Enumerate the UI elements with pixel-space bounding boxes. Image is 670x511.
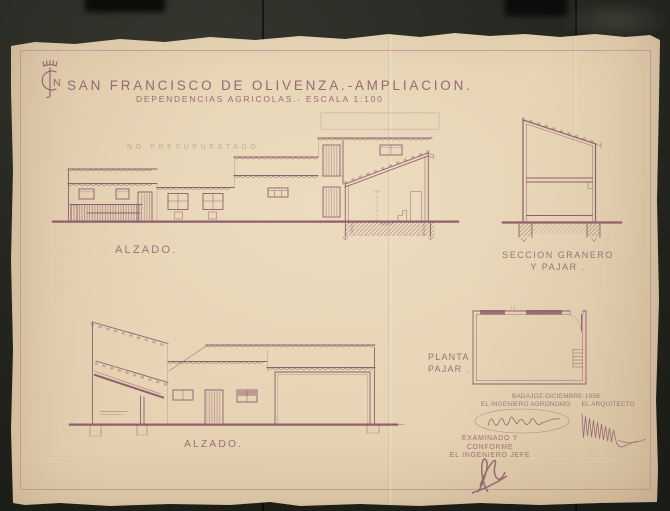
seccion-label-line1: SECCION GRANERO [502, 250, 614, 260]
backdrop-dark-patch [85, 0, 165, 12]
section-granero-drawing [495, 105, 630, 250]
signature-arquitecto [578, 404, 653, 446]
drawing-label-planta: PLANTA PAJAR . [428, 352, 470, 375]
planta-label-line2: PAJAR . [428, 364, 470, 374]
paper-sheet: N SAN FRANCISCO DE OLIVENZA.-AMPLIACION.… [0, 0, 670, 511]
sheet-title: SAN FRANCISCO DE OLIVENZA.-AMPLIACION. [67, 78, 473, 93]
place-date: BADAJOZ-DICIEMBRE-1958 [512, 393, 600, 400]
drawing-label-alzado-top: ALZADO. [115, 244, 177, 256]
scan-backdrop: N SAN FRANCISCO DE OLIVENZA.-AMPLIACION.… [0, 0, 670, 511]
drawing-label-seccion: SECCION GRANERO Y PAJAR . [495, 250, 621, 273]
seccion-label-line2: Y PAJAR . [530, 262, 585, 272]
inc-monogram-icon: N [34, 58, 66, 102]
embossed-stamp [320, 112, 440, 130]
logo-letter: N [53, 77, 61, 89]
elevation-bottom-drawing [60, 300, 450, 445]
planta-label-line1: PLANTA [428, 352, 470, 362]
sheet-subtitle: DEPENDENCIAS AGRICOLAS.- ESCALA 1:100 [136, 94, 384, 104]
signature-ingeniero-jefe [452, 446, 522, 496]
drawing-label-alzado-bottom: ALZADO. [184, 438, 243, 450]
backdrop-dark-patch [505, 0, 567, 16]
planta-pajar-drawing [468, 303, 593, 393]
signature-ingeniero-agronomo [470, 406, 574, 438]
elevation-top-drawing [45, 130, 465, 245]
